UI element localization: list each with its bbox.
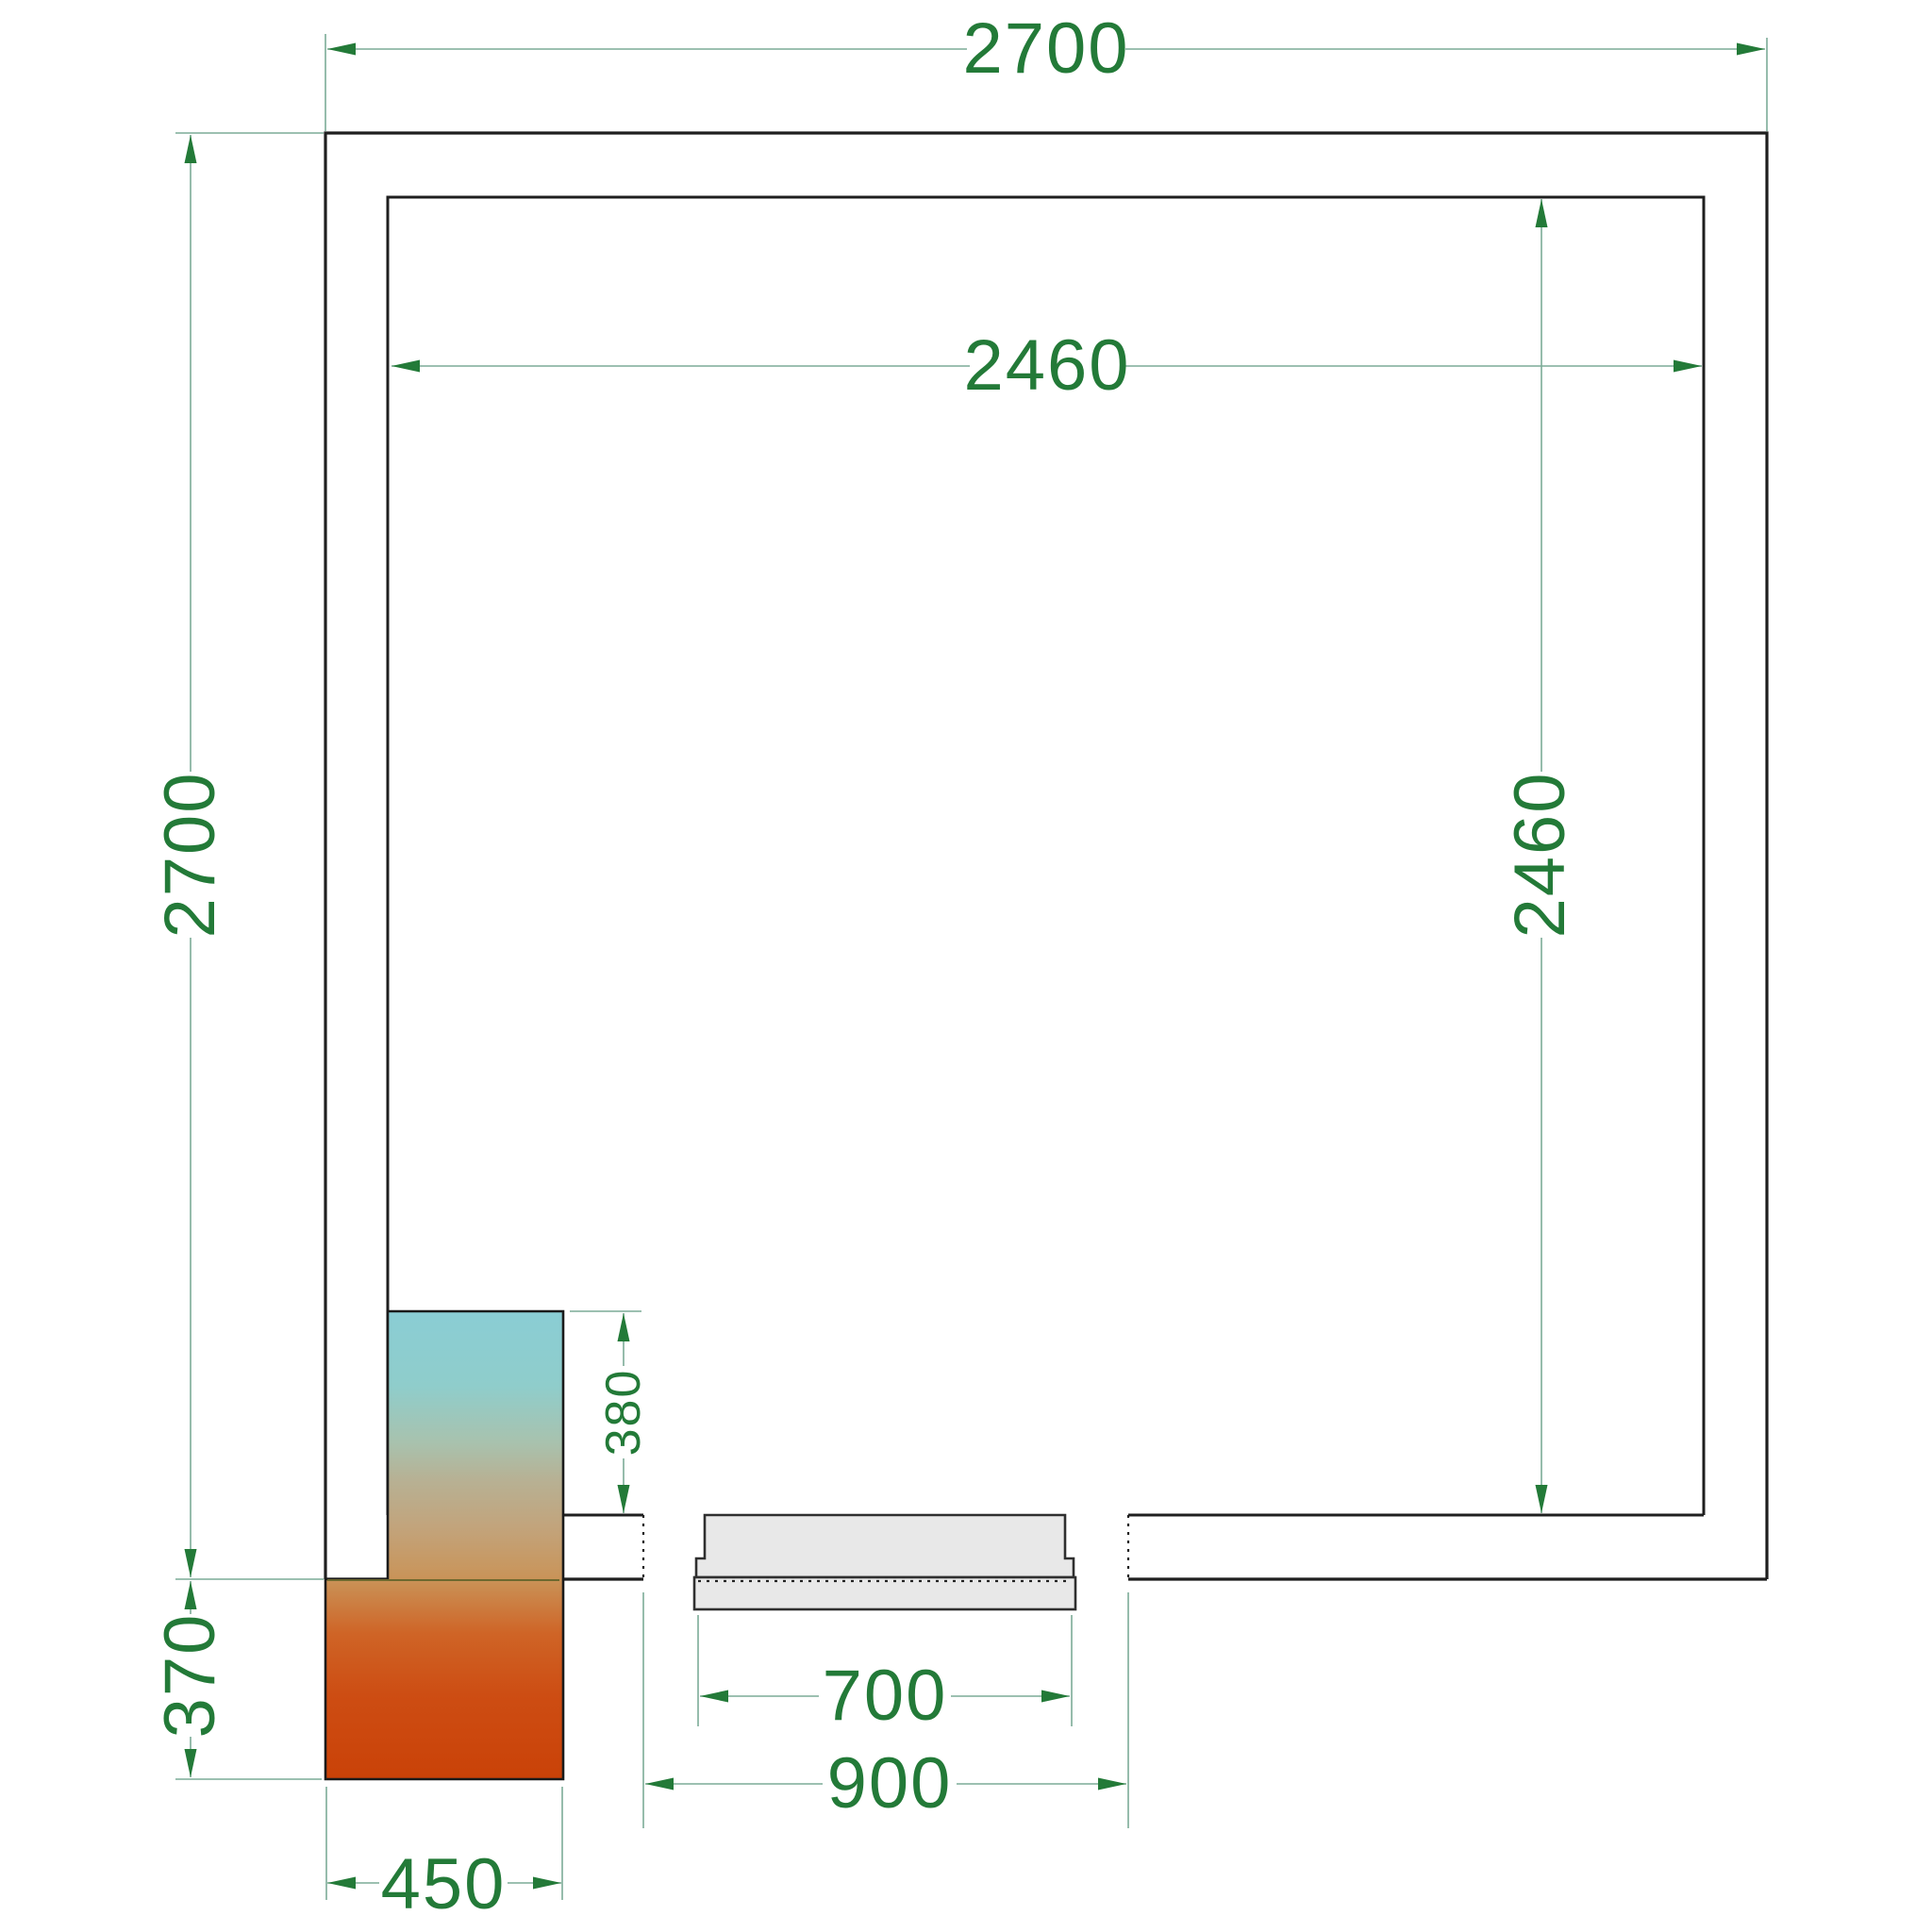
door-leaf	[694, 1515, 1075, 1609]
dim-label-unit-protrusion: 370	[155, 1613, 226, 1739]
dim-label-inner-height: 2460	[1505, 771, 1576, 938]
door-leaf-body	[696, 1515, 1074, 1577]
cooling-unit-gradient-block	[325, 1311, 563, 1779]
floor-plan-drawing	[0, 0, 1932, 1932]
floor-plan-canvas: 2700 2460 2700 2460 380 370 700 900 450	[0, 0, 1932, 1932]
dim-label-outer-height: 2700	[155, 771, 226, 938]
dim-label-outer-width: 2700	[962, 13, 1129, 85]
dim-label-door-leaf-width: 700	[823, 1660, 948, 1732]
dim-label-door-opening-width: 900	[827, 1748, 953, 1820]
dim-label-unit-width: 450	[381, 1849, 507, 1921]
dim-label-inner-width: 2460	[963, 330, 1130, 402]
dim-label-unit-recess: 380	[599, 1369, 648, 1457]
